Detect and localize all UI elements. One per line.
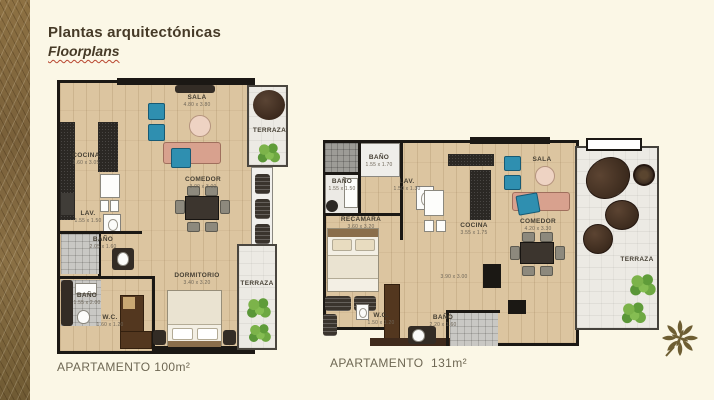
terrace-bottom: TERRAZA	[237, 244, 277, 350]
dining-chair	[205, 186, 218, 196]
sink	[326, 200, 338, 212]
wall-segment	[400, 140, 403, 240]
nightstand	[153, 330, 166, 345]
bed-blanket	[328, 255, 378, 279]
dining-chair	[187, 186, 200, 196]
lounge-chair	[605, 200, 639, 230]
dining-chair	[522, 232, 535, 242]
bathroom-floor	[450, 312, 498, 346]
leaf-logo-icon	[658, 316, 702, 360]
plant-icon	[257, 143, 281, 165]
coffee-table	[515, 192, 540, 216]
room-name: TERRAZA	[240, 280, 273, 288]
page-subtitle: Floorplans	[48, 43, 120, 59]
pillow	[332, 239, 352, 251]
floorplan-apartment-131: TERRAZA BAÑO 1.55 x 1.70 BAÑO 1.55 x 1.5…	[320, 128, 664, 354]
room-label-terraza: TERRAZA	[617, 256, 657, 264]
kitchen-island	[470, 170, 491, 220]
caption-apartment-100: APARTAMENTO 100m²	[57, 360, 190, 374]
plant-icon	[248, 324, 272, 344]
dining-chair	[175, 200, 185, 214]
armchair	[504, 175, 521, 190]
pillow	[355, 239, 375, 251]
armchair	[504, 156, 521, 171]
bed	[167, 290, 222, 346]
dining-chair	[522, 266, 535, 276]
shower	[325, 143, 358, 172]
fridge	[100, 174, 120, 198]
nightstand	[223, 330, 236, 345]
kitchen-island	[98, 122, 118, 172]
page-title: Plantas arquitectónicas	[48, 24, 221, 41]
floorplan-apartment-100: TERRAZA TERRAZA SALA 4.80 x 3.80 COMEDOR…	[57, 78, 291, 358]
balcony-strip	[251, 167, 273, 249]
fridge	[424, 190, 444, 216]
toilet	[117, 252, 129, 266]
sink	[75, 283, 97, 294]
wall-segment	[323, 213, 401, 216]
dining-chair	[205, 222, 218, 232]
bed-blanket	[168, 291, 221, 325]
dining-chair	[220, 200, 230, 214]
dining-chair	[555, 246, 565, 260]
pillow	[172, 328, 193, 340]
closet-shelf	[123, 297, 135, 309]
room-label-terraza-top: TERRAZA	[249, 127, 290, 135]
slide-background: { "header": { "title": "Plantas arquitec…	[0, 0, 714, 400]
dining-chair	[187, 222, 200, 232]
appliance	[110, 200, 119, 212]
bathroom-floor	[358, 143, 400, 177]
wall-segment	[483, 264, 501, 288]
plant-icon	[621, 302, 647, 326]
leaf-texture-band	[0, 0, 30, 400]
coffee-table	[171, 148, 191, 168]
wall-segment	[470, 137, 550, 144]
closet	[120, 331, 152, 349]
closet	[384, 284, 400, 344]
stove	[61, 193, 74, 215]
pillow	[197, 328, 218, 340]
wall-segment	[446, 310, 500, 313]
wall-segment	[446, 310, 449, 346]
bed	[327, 228, 379, 292]
toilet	[77, 310, 90, 324]
wall-segment	[323, 172, 361, 175]
radiator	[323, 314, 337, 336]
wall-segment	[358, 140, 361, 214]
armchair	[148, 124, 165, 141]
tv-console	[175, 85, 215, 93]
wall-segment	[117, 78, 255, 85]
appliance	[100, 200, 109, 212]
wall-segment	[58, 276, 154, 279]
bathroom-floor	[61, 234, 99, 274]
headboard	[168, 341, 221, 347]
terrace: TERRAZA	[575, 146, 659, 330]
armchair	[148, 103, 165, 120]
lounge-chair	[583, 224, 613, 254]
vanity	[61, 280, 73, 326]
room-name: TERRAZA	[620, 256, 653, 264]
headboard	[328, 229, 378, 237]
balcony-unit	[255, 174, 270, 194]
balcony-unit	[255, 224, 270, 244]
side-table	[535, 166, 555, 186]
terrace-top: TERRAZA	[247, 85, 288, 167]
dining-chair	[540, 266, 553, 276]
bathtub	[344, 178, 358, 208]
plant-icon	[629, 274, 657, 298]
round-terrace-table	[253, 90, 285, 120]
round-terrace-table	[633, 164, 655, 186]
washer	[356, 304, 369, 320]
appliance	[424, 220, 434, 232]
plant-icon	[246, 298, 272, 320]
side-table	[189, 115, 211, 137]
room-label-terraza-bottom: TERRAZA	[239, 280, 275, 288]
lounge-chair	[578, 148, 639, 207]
kitchen-counter	[448, 154, 494, 166]
caption-apartment-131: APARTAMENTO 131m²	[330, 356, 467, 370]
bench	[325, 296, 351, 311]
dining-chair	[510, 246, 520, 260]
appliance	[436, 220, 446, 232]
balcony-unit	[255, 199, 270, 219]
dining-table	[185, 196, 219, 220]
wall-segment	[508, 300, 526, 314]
terrace-planter	[586, 138, 642, 151]
room-name: TERRAZA	[253, 127, 286, 135]
toilet	[412, 329, 425, 342]
dining-table	[520, 242, 554, 264]
dining-chair	[540, 232, 553, 242]
